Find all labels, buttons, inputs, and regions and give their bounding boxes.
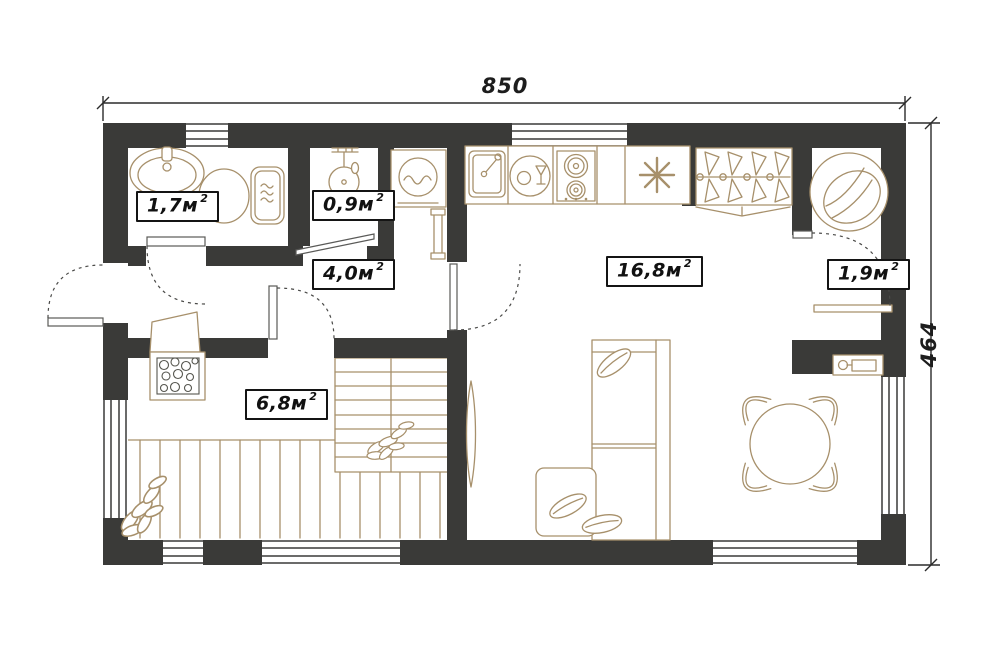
room-area-sup: 2: [309, 390, 317, 403]
washing-machine-icon: [391, 150, 446, 207]
dimension-top-label: 850: [455, 74, 555, 98]
room-area-sup: 2: [684, 257, 692, 270]
plan-drawing: [0, 0, 1008, 667]
dining-table-icon: [733, 387, 846, 500]
room-area-sup: 2: [891, 260, 899, 273]
dimension-right-label: 464: [917, 314, 941, 374]
room-area-text: 4,0м: [323, 262, 374, 284]
storage-shelf: [814, 305, 892, 312]
room-area-text: 6,8м: [256, 392, 307, 414]
room-label-hallway: 4,0м2: [312, 259, 395, 290]
fridge-snowflake-icon: [640, 158, 674, 192]
room-area-sup: 2: [376, 260, 384, 273]
room-area-sup: 2: [200, 192, 208, 205]
round-chair-icon: [810, 153, 890, 234]
floor-plan: 850 464 1,7м2 0,9м2 4,0м2 16,8м2 1,9м2 6…: [0, 0, 1008, 667]
grill-stove-icon: [150, 312, 205, 400]
sofa-icon: [536, 340, 670, 540]
dimension-top: [97, 96, 911, 121]
room-label-storage: 1,9м2: [827, 259, 910, 290]
wall-boiler-icon: [833, 355, 883, 375]
room-label-terrace: 6,8м2: [245, 389, 328, 420]
room-label-living: 16,8м2: [606, 256, 703, 287]
stairs-icon: [335, 358, 448, 472]
room-label-bathroom: 1,7м2: [136, 191, 219, 222]
kitchen-sink-icon: [469, 151, 505, 197]
terrace-door: [269, 286, 334, 339]
wardrobe-hangers-icon: [696, 148, 792, 216]
towel-rail-icon: [431, 209, 445, 259]
room-area-sup: 2: [376, 191, 384, 204]
room-area-text: 1,9м: [838, 262, 889, 284]
room-label-shower: 0,9м2: [312, 190, 395, 221]
tall-decor-object: [467, 381, 476, 487]
entrance-door: [48, 265, 103, 326]
room-area-text: 0,9м: [323, 193, 374, 215]
room-area-text: 1,7м: [147, 194, 198, 216]
room-area-text: 16,8м: [617, 259, 682, 281]
